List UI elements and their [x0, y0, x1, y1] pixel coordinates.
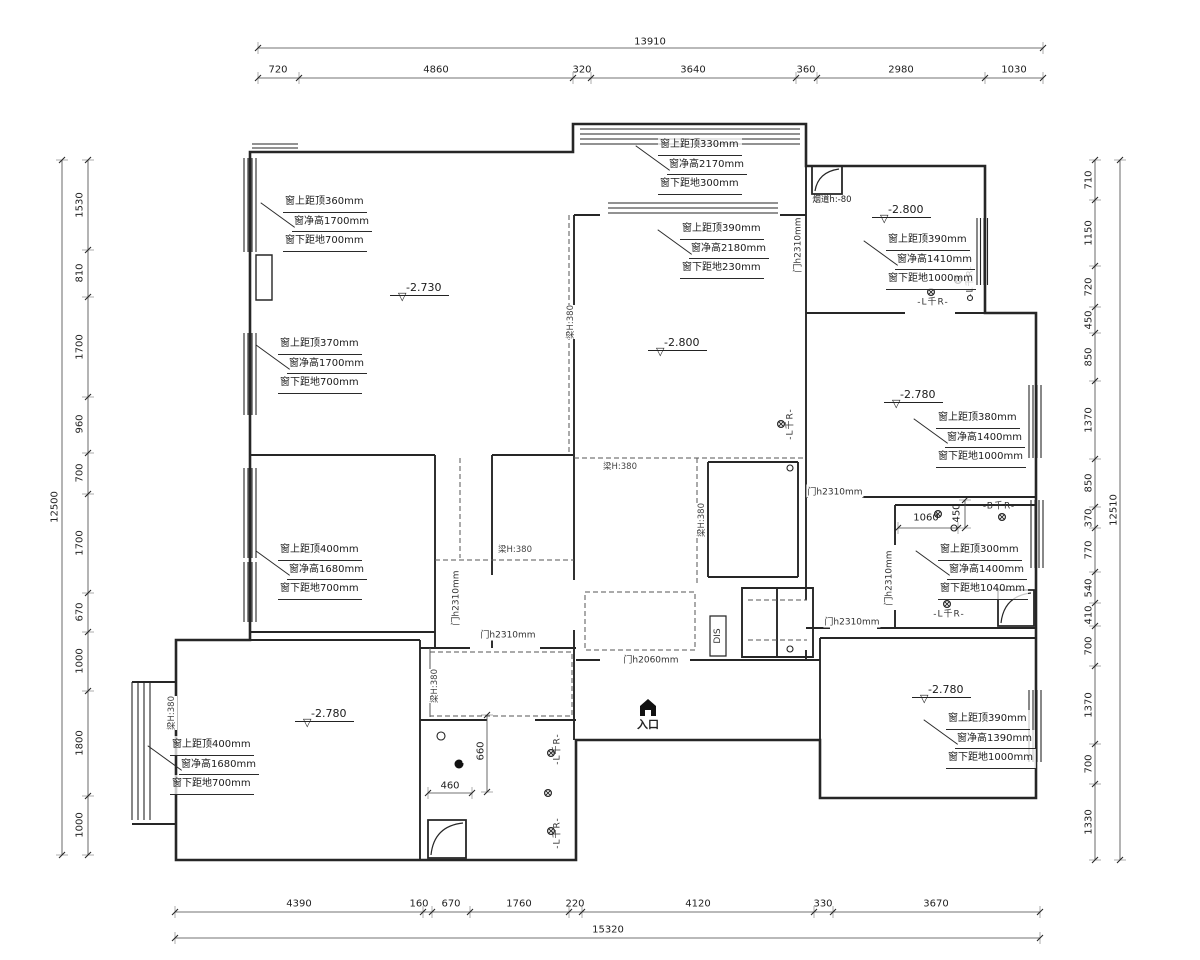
window-annotation: 窗上距顶370mm窗净高1700mm窗下距地700mm	[278, 335, 367, 394]
window-annotation: 窗上距顶390mm窗净高1410mm窗下距地1000mm	[886, 231, 976, 290]
beam-label: 梁H:380	[498, 543, 532, 555]
dim-left: 1530	[75, 192, 86, 217]
entrance-arrow-icon	[640, 699, 656, 716]
level-triangle-icon: ▽	[398, 291, 406, 302]
dim-bottom: 4390	[286, 899, 311, 910]
window-annotation-line: 窗上距顶380mm	[936, 409, 1020, 429]
door-height-label: 门h2310mm	[449, 569, 462, 626]
window-annotation: 窗上距顶330mm窗净高2170mm窗下距地300mm	[658, 136, 747, 195]
dim-bottom: 3670	[923, 899, 948, 910]
dim-top: 4860	[423, 65, 448, 76]
dim-right: 700	[1084, 754, 1095, 773]
dim-bottom-total: 15320	[592, 925, 624, 936]
level-marker: -2.730▽	[390, 281, 449, 296]
window-annotation-line: 窗净高2170mm	[667, 156, 747, 176]
window-annotation-line: 窗净高1400mm	[947, 561, 1027, 581]
window-annotation: 窗上距顶400mm窗净高1680mm窗下距地700mm	[170, 736, 259, 795]
level-marker: -2.780▽	[295, 707, 354, 722]
window-annotation-line: 窗净高1700mm	[287, 355, 367, 375]
dim-left: 670	[75, 602, 86, 621]
dim-bottom: 220	[565, 899, 584, 910]
dim-right: 1370	[1084, 407, 1095, 432]
beam-label: 梁H:380	[603, 460, 637, 472]
dim-inner: 660	[476, 741, 487, 760]
dim-inner: 460	[440, 781, 459, 792]
level-marker: -2.780▽	[884, 388, 943, 403]
window-annotation-line: 窗下距地1040mm	[938, 580, 1028, 600]
beam-label: 梁H:380	[428, 669, 440, 703]
dim-right: 700	[1084, 636, 1095, 655]
window-annotation-line: 窗下距地700mm	[278, 374, 362, 394]
dim-left: 1700	[75, 530, 86, 555]
drain-label: -L千R-	[783, 408, 796, 439]
dim-top: 720	[268, 65, 287, 76]
dim-bottom: 160	[409, 899, 428, 910]
window-annotation-line: 窗上距顶390mm	[886, 231, 970, 251]
dim-right: 450	[1084, 310, 1095, 329]
level-marker: -2.780▽	[912, 683, 971, 698]
window-annotation-line: 窗上距顶360mm	[283, 193, 367, 213]
window-annotation-line: 窗净高1400mm	[945, 429, 1025, 449]
dim-right: 850	[1084, 347, 1095, 366]
dim-right: 370	[1084, 508, 1095, 527]
dim-top: 320	[572, 65, 591, 76]
level-marker: -2.800▽	[872, 203, 931, 218]
dim-right: 1370	[1084, 692, 1095, 717]
flue-label: 烟道h:-80	[812, 193, 851, 205]
dim-left: 700	[75, 463, 86, 482]
door-height-label: 门h2310mm	[479, 628, 536, 641]
drain-label: -L千R-	[550, 733, 563, 764]
dim-right: 410	[1084, 605, 1095, 624]
beam-label: 梁H:380	[695, 503, 707, 537]
window-annotation-line: 窗下距地700mm	[283, 232, 367, 252]
dim-right: 770	[1084, 540, 1095, 559]
window-annotation-line: 窗净高1700mm	[292, 213, 372, 233]
floorplan-canvas: 1391072048603203640360298010304390160670…	[0, 0, 1200, 960]
drain-label: -L千R-	[917, 295, 948, 308]
window-annotation-line: 窗净高2180mm	[689, 240, 769, 260]
window-annotation-line: 窗下距地1000mm	[886, 270, 976, 290]
dim-right: 710	[1084, 170, 1095, 189]
drain-label: -L千R-	[933, 607, 964, 620]
level-triangle-icon: ▽	[656, 346, 664, 357]
window-annotation-line: 窗上距顶330mm	[658, 136, 742, 156]
window-annotation-line: 窗下距地1000mm	[946, 749, 1036, 769]
drain-label: -B千R-	[983, 499, 1015, 512]
dim-inner: 450	[952, 503, 963, 522]
dim-inner: 1060	[913, 513, 938, 524]
window-annotation-line: 窗下距地700mm	[278, 580, 362, 600]
dim-left: 960	[75, 414, 86, 433]
window-annotation-line: 窗净高1410mm	[895, 251, 975, 271]
dim-right-total: 12510	[1109, 494, 1120, 526]
window-annotation-line: 窗上距顶390mm	[946, 710, 1030, 730]
window-annotation: 窗上距顶360mm窗净高1700mm窗下距地700mm	[283, 193, 372, 252]
window-annotation-line: 窗下距地700mm	[170, 775, 254, 795]
window-annotation-line: 窗下距地1000mm	[936, 448, 1026, 468]
beam-label: 梁H:380	[165, 696, 177, 730]
floorplan-drawing	[0, 0, 1200, 960]
dim-top: 3640	[680, 65, 705, 76]
dim-right: 720	[1084, 277, 1095, 296]
window-annotation-line: 窗上距顶400mm	[278, 541, 362, 561]
level-triangle-icon: ▽	[892, 398, 900, 409]
dim-top: 360	[796, 65, 815, 76]
dim-right: 540	[1084, 578, 1095, 597]
level-marker: -2.800▽	[648, 336, 707, 351]
window-annotation: 窗上距顶300mm窗净高1400mm窗下距地1040mm	[938, 541, 1028, 600]
window-annotation-line: 窗净高1680mm	[287, 561, 367, 581]
window-annotation-line: 窗上距顶300mm	[938, 541, 1022, 561]
window-annotation-line: 窗上距顶370mm	[278, 335, 362, 355]
window-annotation: 窗上距顶390mm窗净高1390mm窗下距地1000mm	[946, 710, 1036, 769]
dim-left: 1800	[75, 730, 86, 755]
door-height-label: 门h2310mm	[882, 549, 895, 606]
dim-bottom: 330	[813, 899, 832, 910]
dim-bottom: 670	[441, 899, 460, 910]
dim-left-total: 12500	[50, 491, 61, 523]
window-annotation-line: 窗下距地300mm	[658, 175, 742, 195]
dis-label: DIS	[713, 627, 723, 644]
dim-right: 1330	[1084, 809, 1095, 834]
dim-right: 1150	[1084, 220, 1095, 245]
window-annotation: 窗上距顶380mm窗净高1400mm窗下距地1000mm	[936, 409, 1026, 468]
dim-top-total: 13910	[634, 37, 666, 48]
window-annotation: 窗上距顶400mm窗净高1680mm窗下距地700mm	[278, 541, 367, 600]
dim-left: 1000	[75, 648, 86, 673]
dim-left: 1000	[75, 812, 86, 837]
dim-left: 1700	[75, 334, 86, 359]
window-annotation-line: 窗净高1680mm	[179, 756, 259, 776]
door-height-label: 门h2310mm	[806, 485, 863, 498]
door-height-label: 门h2310mm	[791, 216, 804, 273]
window-annotation-line: 窗上距顶400mm	[170, 736, 254, 756]
dim-top: 2980	[888, 65, 913, 76]
level-triangle-icon: ▽	[303, 717, 311, 728]
level-triangle-icon: ▽	[880, 213, 888, 224]
window-annotation-line: 窗下距地230mm	[680, 259, 764, 279]
dim-right: 850	[1084, 473, 1095, 492]
dim-top: 1030	[1001, 65, 1026, 76]
dim-bottom: 4120	[685, 899, 710, 910]
door-height-label: 门h2060mm	[622, 653, 679, 666]
window-annotation: 窗上距顶390mm窗净高2180mm窗下距地230mm	[680, 220, 769, 279]
beam-label: 梁H:380	[564, 305, 576, 339]
drain-label: -L千R-	[550, 817, 563, 848]
door-height-label: 门h2310mm	[823, 615, 880, 628]
level-triangle-icon: ▽	[920, 693, 928, 704]
window-annotation-line: 窗净高1390mm	[955, 730, 1035, 750]
window-annotation-line: 窗上距顶390mm	[680, 220, 764, 240]
dim-left: 810	[75, 263, 86, 282]
entrance-label: 入口	[637, 716, 659, 732]
dim-bottom: 1760	[506, 899, 531, 910]
